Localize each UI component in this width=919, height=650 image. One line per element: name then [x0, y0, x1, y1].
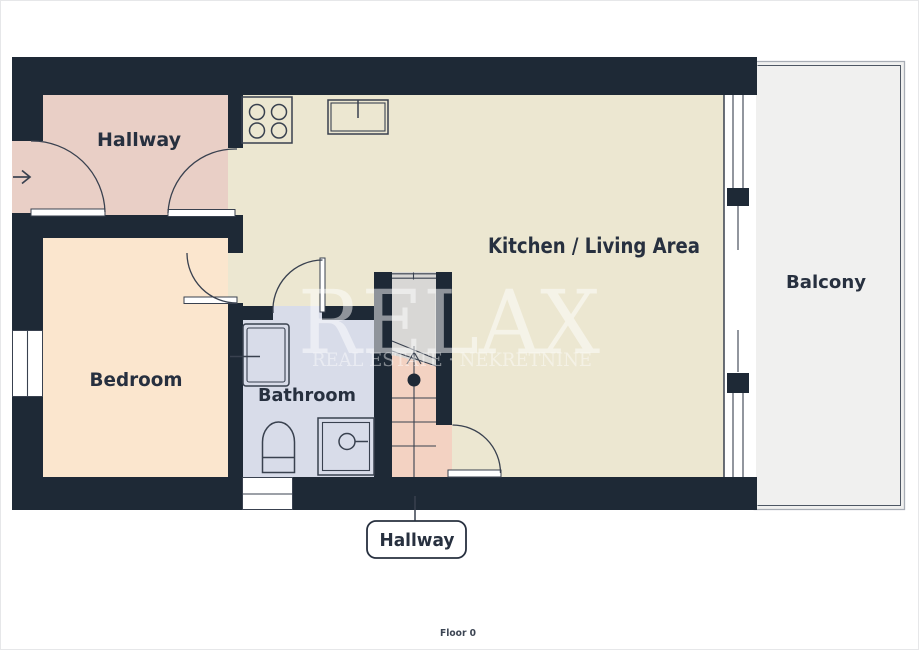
bathroom-label: Bathroom [258, 385, 356, 406]
kitchen-living-label: Kitchen / Living Area [488, 234, 700, 258]
hallway-floor [12, 95, 228, 215]
bedroom-floor [40, 215, 228, 477]
bedroom-window [13, 331, 43, 397]
bathroom-window [243, 478, 293, 510]
hallway-label: Hallway [97, 129, 182, 151]
window-pier [727, 373, 749, 393]
bedroom-label: Bedroom [90, 369, 183, 391]
watermark: RELAX REAL ESTATE · NEKRETNINE [298, 271, 600, 374]
floorplan-page: RELAX REAL ESTATE · NEKRETNINE Hallway K… [0, 0, 919, 650]
hallway-callout-label: Hallway [380, 530, 455, 551]
watermark-tagline: REAL ESTATE · NEKRETNINE [312, 349, 592, 371]
balcony-label: Balcony [786, 272, 866, 293]
window-pier [727, 188, 749, 206]
floorplan-svg: RELAX REAL ESTATE · NEKRETNINE Hallway K… [0, 0, 919, 650]
floor-label: Floor 0 [440, 628, 476, 639]
stairs-start-dot [408, 374, 421, 387]
balcony-glass-wall [724, 95, 756, 477]
